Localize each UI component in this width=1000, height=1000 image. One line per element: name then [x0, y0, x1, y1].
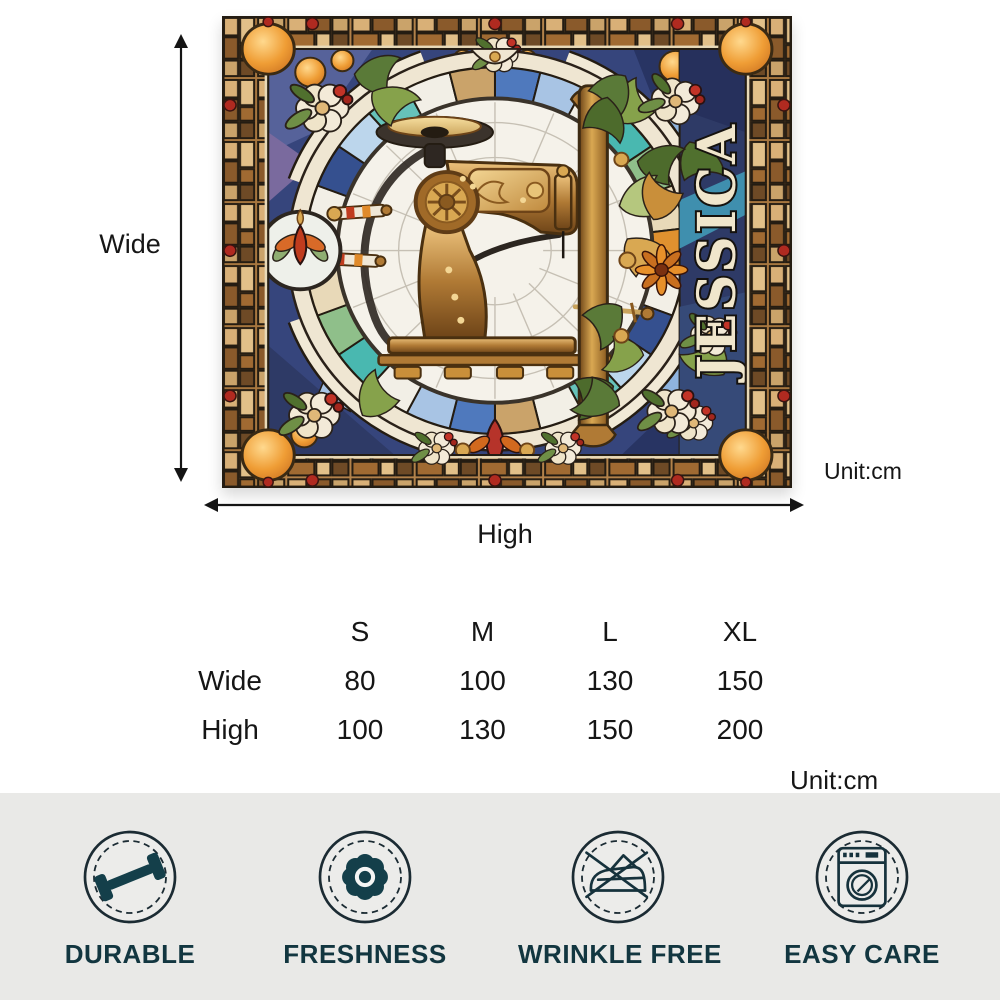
feature-label: WRINKLE FREE: [518, 939, 718, 970]
table-cell: 100: [310, 714, 410, 746]
table-cell: 100: [410, 665, 555, 697]
personalized-name-text: JESSICA: [687, 122, 748, 383]
feature-easy-care: EASY CARE: [762, 793, 962, 1000]
table-cell: 80: [310, 665, 410, 697]
table-cell: 150: [665, 665, 815, 697]
machine-sun-medallion: [416, 172, 478, 232]
high-dimension-label: High: [455, 519, 555, 550]
product-artwork: JESSICA: [222, 16, 792, 488]
table-cell: 130: [555, 665, 665, 697]
size-table-row-wide: Wide 80 100 130 150: [150, 665, 815, 697]
wide-dimension-label: Wide: [83, 229, 177, 260]
unit-label-table: Unit:cm: [790, 765, 878, 796]
stained-glass-blanket-art: JESSICA: [222, 16, 792, 488]
lotus-medallion: [260, 210, 340, 289]
product-infographic: JESSICA: [0, 0, 1000, 1000]
dahlia-flower: [635, 245, 687, 295]
row-label: High: [150, 714, 310, 746]
unit-label-image: Unit:cm: [824, 458, 902, 485]
feature-label: EASY CARE: [762, 939, 962, 970]
size-column-header: L: [555, 616, 665, 648]
table-cell: 130: [410, 714, 555, 746]
feature-freshness: FRESHNESS: [265, 793, 465, 1000]
washing-machine-icon: [808, 823, 916, 931]
flower-icon: [311, 823, 419, 931]
size-table-header-row: S M L XL: [150, 616, 815, 648]
row-label: Wide: [150, 665, 310, 697]
dumbbell-icon: [76, 823, 184, 931]
feature-durable: DURABLE: [30, 793, 230, 1000]
size-column-header: S: [310, 616, 410, 648]
high-dimension-arrow: [202, 492, 806, 518]
size-table-corner-cell: [150, 616, 310, 648]
table-cell: 150: [555, 714, 665, 746]
feature-label: DURABLE: [30, 939, 230, 970]
feature-label: FRESHNESS: [265, 939, 465, 970]
feature-bar: DURABLE FRESHNESS: [0, 793, 1000, 1000]
size-table-row-high: High 100 130 150 200: [150, 714, 815, 746]
size-column-header: M: [410, 616, 555, 648]
machine-needle-head: [555, 175, 571, 229]
no-iron-icon: [564, 823, 672, 931]
table-cell: 200: [665, 714, 815, 746]
feature-wrinkle-free: WRINKLE FREE: [518, 793, 718, 1000]
size-column-header: XL: [665, 616, 815, 648]
